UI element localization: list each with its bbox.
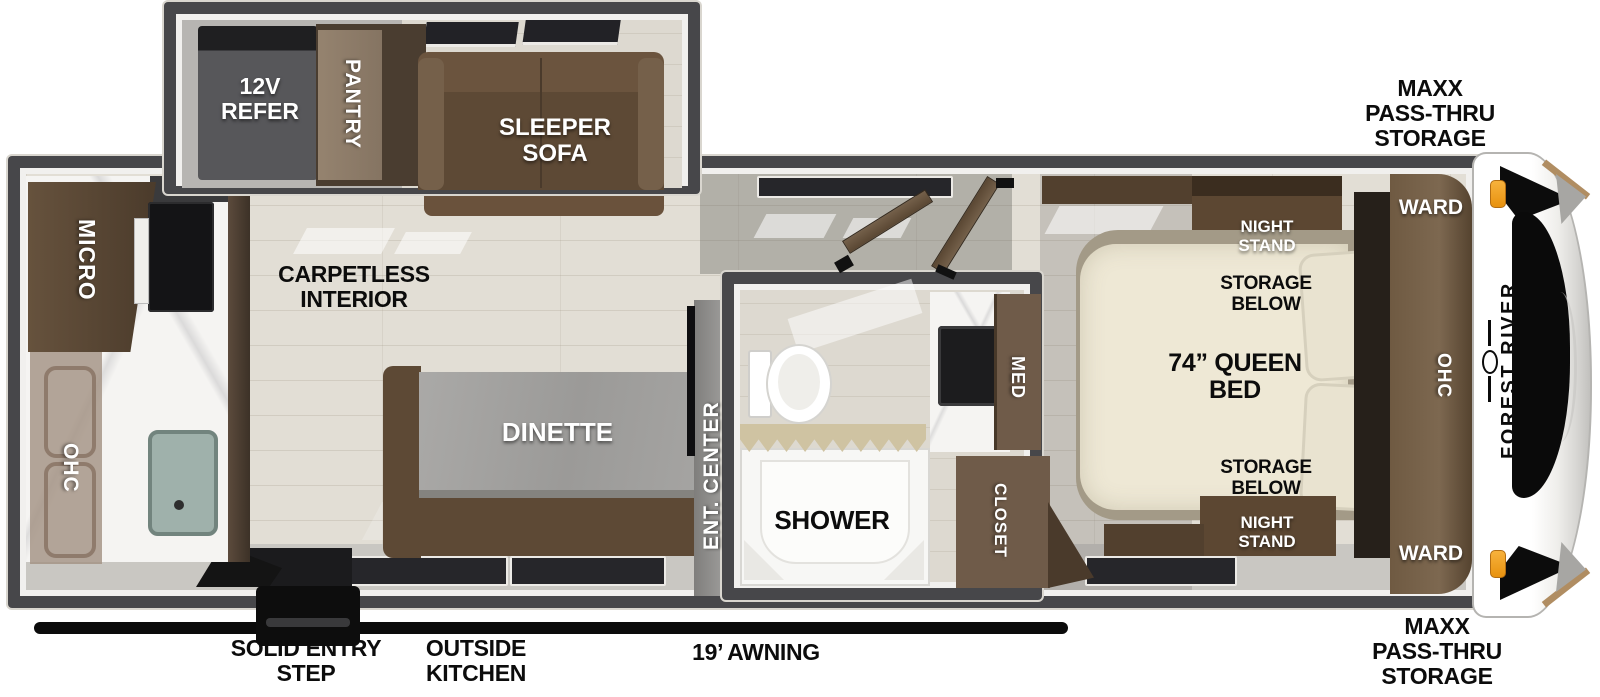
vanity-sink [938, 326, 998, 406]
ent-center-label: ENT. CENTER [700, 388, 730, 564]
awning-label: 19’ AWNING [666, 640, 846, 670]
nightstand-bottom-label: NIGHT STAND [1207, 514, 1327, 554]
stove-cooktop [148, 202, 214, 312]
awning-bar [34, 622, 1068, 634]
headboard-panel [1354, 192, 1392, 558]
window-bottom-bedroom [1085, 556, 1237, 586]
refer-label: 12V REFER [205, 74, 315, 126]
brand-logo-dash [1488, 320, 1491, 346]
storage-below-top-label: STORAGE BELOW [1205, 274, 1327, 316]
slide-window-left [423, 22, 519, 47]
sink-drain-icon [174, 500, 184, 510]
marker-light-bottom [1490, 550, 1506, 578]
kitchen-sink [148, 430, 218, 536]
counter-edge-panel [228, 186, 250, 562]
brand-logo-icon [1482, 350, 1498, 374]
bedroom-ohc-label: OHC [1426, 340, 1454, 412]
outside-kitchen-label: OUTSIDE KITCHEN [396, 636, 556, 692]
tv [687, 306, 695, 456]
pantry-label: PANTRY [336, 44, 364, 164]
door-hinge-mark [996, 178, 1014, 188]
ward-top-label: WARD [1394, 196, 1468, 222]
brand-label: FOREST RIVER [1498, 236, 1522, 504]
window-bottom-living-left [348, 556, 508, 586]
slide-window-right [522, 20, 621, 45]
micro-label: MICRO [70, 210, 100, 310]
cap-speed-line [1544, 292, 1577, 442]
sleeper-sofa-label: SLEEPER SOFA [490, 115, 620, 171]
floor-light-patch [754, 214, 837, 238]
toilet-seat [778, 354, 820, 410]
bedroom-top-shelf [1042, 176, 1194, 204]
marker-light-top [1490, 180, 1506, 208]
queen-bed-label: 74” QUEEN BED [1148, 350, 1322, 406]
window-bottom-living-right [510, 556, 666, 586]
storage-below-bottom-label: STORAGE BELOW [1205, 458, 1327, 500]
entry-step-slot [266, 618, 350, 627]
bedroom-bottom-shelf [1104, 524, 1204, 556]
ward-bottom-label: WARD [1392, 542, 1470, 568]
sofa-arm-right [638, 58, 664, 190]
sofa-arm-left [418, 58, 444, 190]
kitchen-ohc-label: OHC [52, 430, 82, 506]
stove-controls [134, 218, 149, 304]
floor-light-patch [394, 232, 472, 254]
maxx-storage-top-label: MAXX PASS-THRU STORAGE [1325, 76, 1535, 156]
shower-label: SHOWER [762, 506, 902, 538]
carpetless-interior-label: CARPETLESS INTERIOR [264, 262, 444, 316]
dinette-label: DINETTE [480, 418, 635, 448]
maxx-storage-bottom-label: MAXX PASS-THRU STORAGE [1332, 614, 1542, 694]
entry-step-label: SOLID ENTRY STEP [216, 636, 396, 692]
floor-light-patch [293, 228, 395, 254]
closet-label: CLOSET [984, 476, 1010, 564]
nightstand-top-label: NIGHT STAND [1207, 218, 1327, 258]
floorplan-stage: FOREST RIVER 12V REFER PANTRY SLEEPER SO… [0, 0, 1600, 697]
brand-logo-dash [1488, 376, 1491, 402]
med-label: MED [1002, 342, 1028, 412]
